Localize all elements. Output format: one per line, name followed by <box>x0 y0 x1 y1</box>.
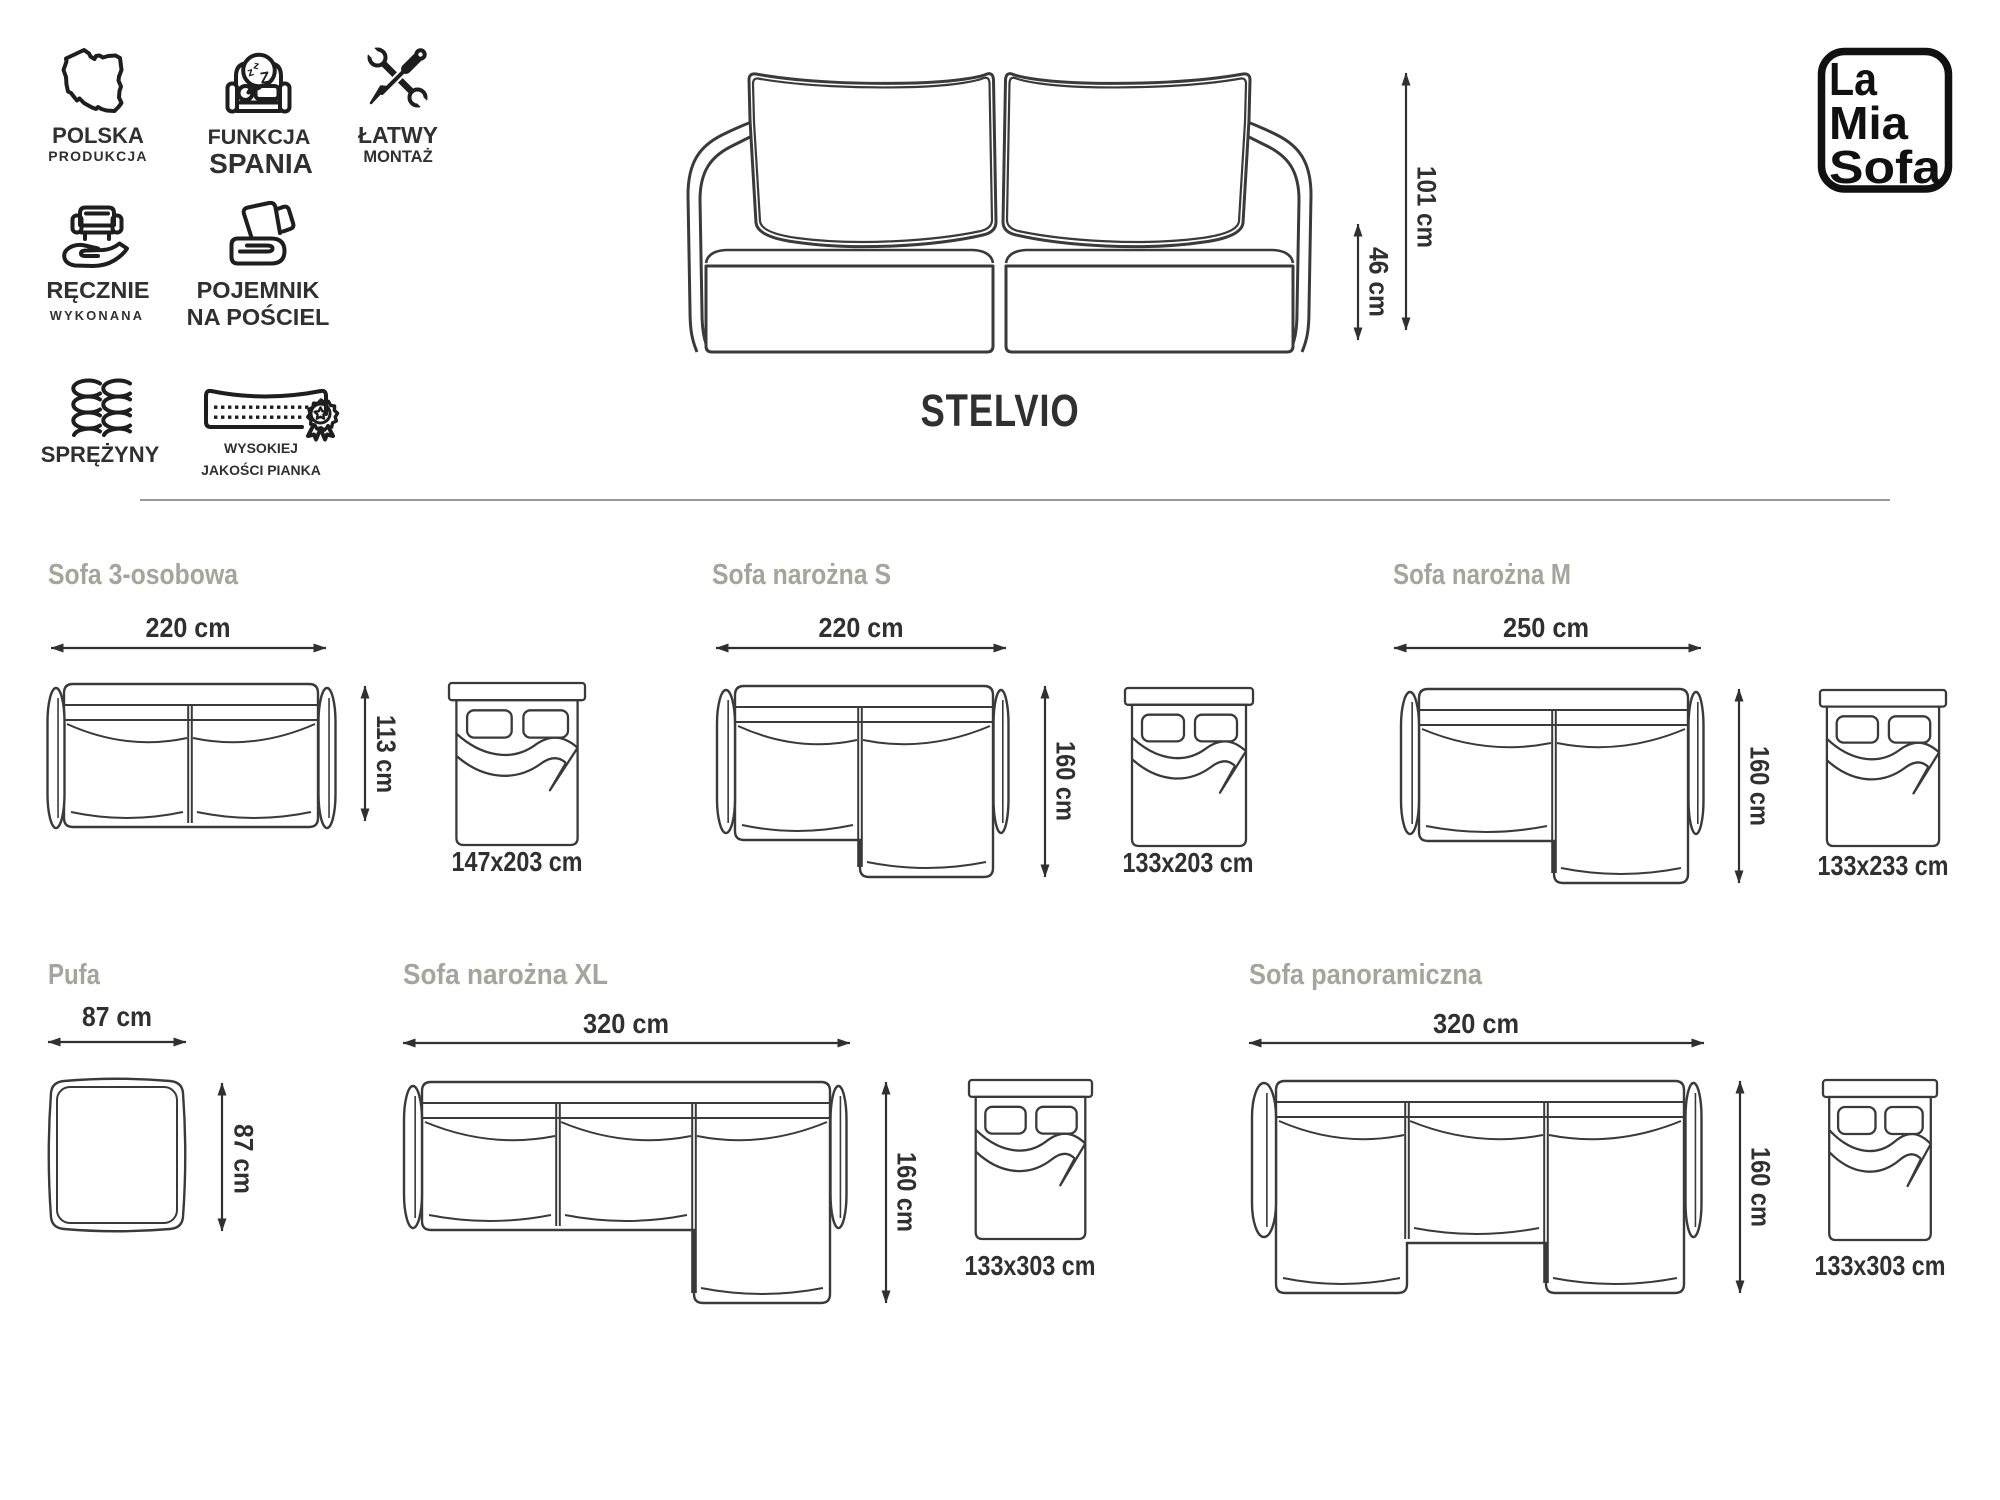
svg-text:Sofa panoramiczna: Sofa panoramiczna <box>1249 959 1483 991</box>
svg-text:WYSOKIEJ: WYSOKIEJ <box>224 440 298 456</box>
svg-text:Sofa narożna XL: Sofa narożna XL <box>403 959 608 991</box>
svg-text:Sofa narożna M: Sofa narożna M <box>1393 559 1571 591</box>
svg-text:160 cm: 160 cm <box>1745 746 1775 826</box>
svg-text:133x303 cm: 133x303 cm <box>965 1250 1096 1281</box>
svg-text:MONTAŻ: MONTAŻ <box>363 148 432 166</box>
svg-text:320 cm: 320 cm <box>583 1008 669 1039</box>
svg-text:160 cm: 160 cm <box>1051 741 1081 821</box>
svg-text:SPANIA: SPANIA <box>209 148 313 179</box>
svg-text:113 cm: 113 cm <box>371 715 401 793</box>
svg-text:160 cm: 160 cm <box>1746 1147 1776 1227</box>
svg-text:133x303 cm: 133x303 cm <box>1815 1250 1946 1281</box>
svg-text:POLSKA: POLSKA <box>52 123 144 148</box>
svg-text:Pufa: Pufa <box>48 959 101 991</box>
svg-text:250 cm: 250 cm <box>1503 612 1589 643</box>
svg-text:133x203 cm: 133x203 cm <box>1123 847 1254 878</box>
svg-text:JAKOŚCI PIANKA: JAKOŚCI PIANKA <box>201 461 321 478</box>
svg-text:ŁATWY: ŁATWY <box>358 122 438 148</box>
svg-text:Sofa: Sofa <box>1829 141 1941 193</box>
svg-text:Sofa 3-osobowa: Sofa 3-osobowa <box>48 559 239 591</box>
svg-text:101 cm: 101 cm <box>1412 166 1442 248</box>
svg-text:87 cm: 87 cm <box>82 1001 152 1032</box>
svg-text:46 cm: 46 cm <box>1364 247 1394 317</box>
svg-text:320 cm: 320 cm <box>1433 1008 1519 1039</box>
svg-text:160 cm: 160 cm <box>892 1152 922 1232</box>
svg-text:Sofa narożna S: Sofa narożna S <box>712 559 891 591</box>
svg-text:STELVIO: STELVIO <box>921 385 1080 436</box>
svg-text:POJEMNIK: POJEMNIK <box>197 277 320 303</box>
svg-text:RĘCZNIE: RĘCZNIE <box>46 277 149 303</box>
svg-text:147x203 cm: 147x203 cm <box>452 846 583 877</box>
svg-text:PRODUKCJA: PRODUKCJA <box>48 148 147 164</box>
svg-text:220 cm: 220 cm <box>819 612 904 643</box>
svg-text:133x233 cm: 133x233 cm <box>1818 850 1949 881</box>
svg-text:87 cm: 87 cm <box>229 1124 259 1194</box>
svg-text:SPRĘŻYNY: SPRĘŻYNY <box>41 442 160 467</box>
svg-text:220 cm: 220 cm <box>146 612 231 643</box>
svg-text:FUNKCJA: FUNKCJA <box>208 125 311 149</box>
svg-text:WYKONANA: WYKONANA <box>50 308 144 323</box>
svg-text:NA POŚCIEL: NA POŚCIEL <box>187 303 330 330</box>
